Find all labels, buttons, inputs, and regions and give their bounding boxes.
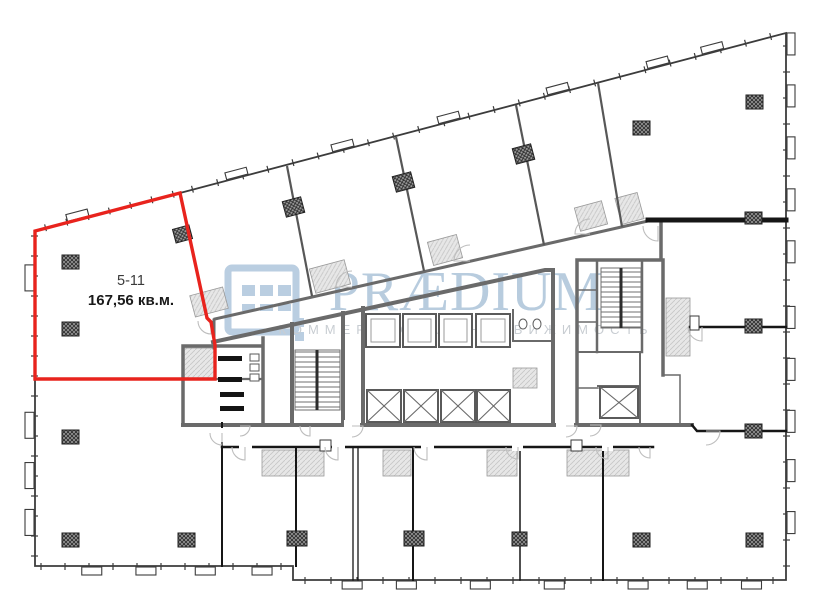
window-marker <box>787 460 795 482</box>
column-marker <box>745 212 762 224</box>
party-wall <box>353 447 358 580</box>
staircase-1 <box>295 350 340 410</box>
column-marker <box>512 532 527 546</box>
window-marker <box>787 358 795 380</box>
door-arc <box>639 447 650 458</box>
column-marker <box>282 197 304 217</box>
column-marker <box>745 319 762 333</box>
partition-wall <box>692 425 786 431</box>
window-marker <box>25 463 34 489</box>
unit-id-label: 5-11 <box>117 273 145 289</box>
window-marker <box>787 241 795 263</box>
column-marker <box>404 531 424 546</box>
window-marker <box>544 581 564 589</box>
service-zone <box>666 298 690 356</box>
window-marker <box>195 567 215 575</box>
service-zone <box>513 368 537 388</box>
column-marker <box>633 533 650 547</box>
window-marker <box>741 581 761 589</box>
sink-icon <box>250 374 259 381</box>
window-marker <box>787 85 795 107</box>
wc-stall <box>220 406 244 411</box>
window-marker <box>82 567 102 575</box>
column-marker <box>746 533 763 547</box>
door-arc <box>706 431 720 445</box>
column-marker <box>745 424 762 438</box>
window-marker <box>136 567 156 575</box>
service-zone <box>574 201 607 231</box>
service-zone <box>262 450 324 476</box>
column-marker <box>62 430 79 444</box>
unit-5-11: 5-11 167,56 кв.м. <box>35 193 215 379</box>
column-marker <box>512 144 534 164</box>
door-arc <box>643 226 658 241</box>
elevator-icon <box>477 390 510 422</box>
column-marker <box>62 533 79 547</box>
sink-icon <box>250 364 259 371</box>
room-divider <box>396 137 424 271</box>
elevator-bank-bottom <box>367 387 638 422</box>
floor-plan: PRÆDIUM КОММЕРЧЕСКАЯ НЕДВИЖИМОСТЬ <box>0 0 814 609</box>
elevator-icon <box>404 390 438 422</box>
door-arc <box>300 426 310 436</box>
elevator-shaft <box>439 314 472 347</box>
window-marker <box>787 512 795 534</box>
room-divider <box>516 105 544 245</box>
elevator-icon <box>441 390 475 422</box>
window-marker <box>787 137 795 159</box>
door-arc <box>240 426 250 436</box>
elevator-shaft <box>476 314 510 347</box>
sink-icon <box>250 354 259 361</box>
service-zone <box>487 450 517 476</box>
column-marker <box>746 95 763 109</box>
window-marker <box>470 581 490 589</box>
window-marker <box>787 189 795 211</box>
window-marker <box>342 581 362 589</box>
toilet-icon <box>533 319 541 329</box>
window-marker <box>787 33 795 55</box>
watermark-logo-window <box>242 285 255 296</box>
service-zone <box>383 450 411 476</box>
unit-area-label: 167,56 кв.м. <box>88 292 174 309</box>
staircase-2 <box>601 268 641 328</box>
toilet-icon <box>519 319 527 329</box>
elevator-shaft <box>403 314 436 347</box>
column-marker <box>287 531 307 546</box>
door-jamb <box>571 440 582 451</box>
window-marker <box>252 567 272 575</box>
window-marker <box>25 412 34 438</box>
elevator-bank-top <box>366 314 510 347</box>
window-marker <box>787 410 795 432</box>
watermark-logo-window <box>260 285 273 296</box>
elevator-icon <box>600 387 638 418</box>
wc-stall <box>220 392 244 397</box>
window-marker <box>787 306 795 328</box>
window-marker <box>25 509 34 535</box>
elevator-icon <box>367 390 401 422</box>
window-marker <box>687 581 707 589</box>
elevator-shaft <box>366 314 400 347</box>
door-jamb <box>690 316 699 330</box>
window-marker <box>25 265 34 291</box>
wc-stall <box>218 377 242 382</box>
window-marker <box>396 581 416 589</box>
watermark-logo-window <box>278 285 291 296</box>
window-marker <box>628 581 648 589</box>
column-marker <box>633 121 650 135</box>
column-marker <box>392 172 414 192</box>
column-marker <box>178 533 195 547</box>
wc-stall <box>218 356 242 361</box>
